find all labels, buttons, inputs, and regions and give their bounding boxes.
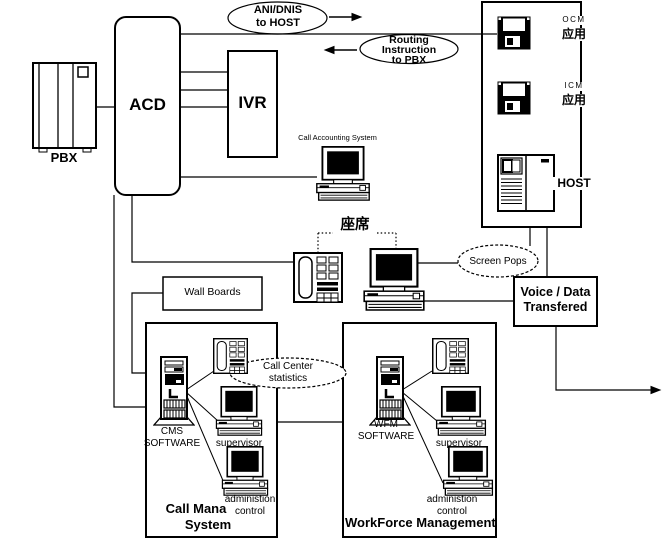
host-server-icon xyxy=(498,155,554,211)
voice-data-label-line2: Transfered xyxy=(514,301,597,315)
cms-title-line1: Call Mana xyxy=(156,502,236,516)
call-center-stats-label-line1: Call Center xyxy=(230,361,346,372)
wfm-software-label-line1: WFM xyxy=(358,419,414,430)
agent-phone-icon xyxy=(294,253,342,302)
call-center-architecture-diagram: PBX ACD IVR ANI/DNIS to HOST Routing Ins… xyxy=(0,0,665,539)
cms-title-line2: System xyxy=(168,518,248,532)
cms-software-label-line1: CMS xyxy=(144,426,200,437)
icm-label: ICM xyxy=(557,82,591,91)
ocm-app-label: 应用 xyxy=(557,28,591,41)
cms-server-tower-icon xyxy=(154,357,194,425)
ocm-floppy-disk-icon xyxy=(498,17,531,50)
icm-app-label: 应用 xyxy=(557,94,591,107)
ani-dnis-label-line1: ANI/DNIS xyxy=(228,4,328,16)
wfm-title: WorkForce Management xyxy=(345,516,495,530)
ani-dnis-label-line2: to HOST xyxy=(228,17,328,29)
voice-data-label-line1: Voice / Data xyxy=(514,286,597,300)
cms-supervisor-computer-icon xyxy=(216,387,261,435)
cms-admin-computer-icon xyxy=(222,447,267,495)
pbx-label: PBX xyxy=(39,151,89,165)
wfm-admin-label-line1: administion xyxy=(424,494,480,505)
acd-label: ACD xyxy=(115,96,180,115)
ivr-label: IVR xyxy=(228,94,277,113)
wfm-phone-icon xyxy=(433,339,469,374)
arrow-right-to-host-icon xyxy=(329,14,361,21)
cms-software-label-line2: SOFTWARE xyxy=(138,438,206,449)
arrow-right-output-icon xyxy=(651,387,660,394)
icm-floppy-disk-icon xyxy=(498,82,531,115)
routing-label-line3: to PBX xyxy=(360,55,458,67)
call-accounting-label: Call Accounting System xyxy=(290,134,385,142)
call-center-stats-label-line2: statistics xyxy=(230,373,346,384)
call-accounting-computer-icon xyxy=(317,147,369,200)
host-label: HOST xyxy=(552,177,596,190)
wfm-supervisor-label: supervisor xyxy=(433,438,485,449)
screen-pops-label: Screen Pops xyxy=(458,256,538,267)
wfm-supervisor-computer-icon xyxy=(437,387,486,435)
wall-boards-label: Wall Boards xyxy=(163,287,262,299)
cms-supervisor-label: supervisor xyxy=(213,438,265,449)
pbx-cabinet-icon xyxy=(33,63,96,152)
wfm-software-label-line2: SOFTWARE xyxy=(354,431,418,442)
arrow-left-to-pbx-icon xyxy=(325,47,357,54)
wfm-server-tower-icon xyxy=(370,357,410,425)
ocm-label: OCM xyxy=(557,16,591,25)
agent-seat-label: 座席 xyxy=(330,218,380,234)
wfm-admin-computer-icon xyxy=(444,447,493,495)
agent-computer-icon xyxy=(364,249,424,310)
